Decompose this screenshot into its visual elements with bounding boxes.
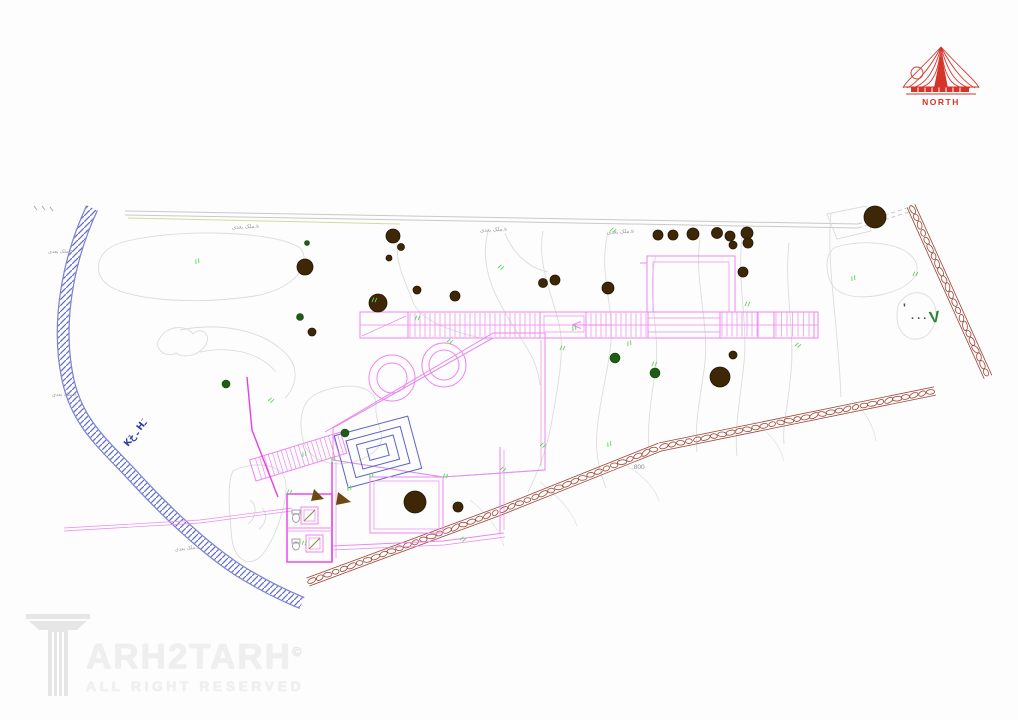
wall-stone — [901, 394, 910, 400]
shrub — [222, 380, 230, 388]
road-lines — [34, 206, 912, 239]
survey-mark — [194, 258, 200, 264]
survey-mark — [415, 316, 420, 321]
tree — [738, 267, 748, 277]
wall-stone — [884, 396, 894, 404]
toilet-fixture — [292, 510, 300, 523]
wall-stone — [954, 306, 961, 314]
annotation-label: ملک بعدی.s — [52, 392, 77, 398]
survey-mark — [745, 302, 750, 307]
wall-stone — [860, 403, 868, 409]
stone-wall-right — [907, 204, 992, 378]
tree — [729, 241, 737, 249]
planter-circles — [369, 343, 466, 401]
wall-stone — [685, 439, 692, 444]
wall-stone — [976, 353, 981, 362]
north-arrow: NORTH — [903, 47, 979, 107]
wall-stone — [339, 565, 348, 572]
wall-stone — [531, 493, 540, 501]
wall-stone — [725, 429, 735, 436]
wall-stone — [793, 416, 801, 422]
wall-stone — [777, 420, 785, 426]
wall-stone — [962, 321, 968, 331]
survey-mark — [460, 536, 466, 542]
north-arrow-core — [934, 52, 948, 88]
shrub — [650, 368, 660, 378]
wall-stone — [475, 515, 484, 522]
annotation-labels-layer: ملک بعدی.sملک بعدی.sملک بعدی.sملک بعدی.s… — [48, 223, 941, 553]
wall-stone — [626, 456, 634, 463]
survey-mark — [443, 474, 448, 479]
shrub — [341, 429, 349, 437]
tree — [668, 230, 678, 240]
survey-mark — [795, 342, 801, 348]
survey-mark — [268, 397, 274, 403]
watermark-brand: ARH2TARH© — [86, 634, 304, 676]
tree — [712, 228, 723, 239]
annotation-label: V — [928, 309, 941, 327]
pool-terrace — [325, 333, 545, 477]
sink-fixture — [292, 539, 300, 550]
wall-stone — [491, 509, 499, 517]
tree — [743, 238, 753, 248]
wall-stone — [610, 463, 618, 468]
wall-stone — [323, 572, 332, 578]
wall-stone — [693, 436, 702, 443]
wall-stone — [851, 403, 859, 410]
wall-stone — [918, 390, 927, 398]
service-building — [287, 489, 351, 562]
annotation-label: Kَـ خ Hَـ — [122, 417, 150, 449]
tree — [550, 275, 560, 285]
tree — [398, 244, 405, 251]
door-swing-1 — [311, 489, 324, 501]
north-label: NORTH — [922, 97, 960, 107]
tree — [687, 228, 699, 240]
wall-stone — [923, 236, 931, 245]
tree — [386, 255, 392, 261]
tree — [308, 328, 316, 336]
wall-stone — [668, 441, 677, 448]
annotation-label: ملک بعدی.s — [480, 226, 507, 234]
pool-hatch-area — [333, 338, 545, 477]
wall-stone — [547, 488, 554, 493]
wall-stone — [931, 252, 937, 259]
wall-stone — [842, 405, 851, 413]
tree — [369, 294, 387, 312]
wall-stone — [768, 421, 776, 427]
door-swing-2 — [336, 492, 351, 505]
annotation-label: ملک بعدی.s — [48, 249, 73, 255]
river-channel — [63, 208, 302, 603]
tree — [729, 351, 737, 359]
tree — [602, 282, 614, 294]
tree — [864, 206, 886, 228]
survey-mark — [498, 264, 504, 270]
wall-stone — [926, 389, 934, 394]
wall-stone — [752, 425, 760, 430]
wall-stone — [586, 472, 594, 478]
tree — [404, 491, 426, 513]
wall-stone — [395, 545, 403, 550]
trees-layer — [297, 206, 886, 513]
wall-stone — [356, 560, 363, 565]
wall-stone — [801, 414, 811, 421]
wall-stone — [920, 229, 926, 237]
tree — [741, 227, 753, 239]
wall-stone — [426, 534, 436, 539]
tree — [453, 502, 463, 512]
wall-stone — [602, 465, 610, 472]
wall-stone — [700, 434, 711, 442]
wall-stone — [965, 330, 972, 338]
wall-stone — [948, 291, 954, 299]
wall-stone — [809, 411, 820, 420]
wall-stone — [507, 502, 516, 510]
wall-stone — [466, 518, 476, 525]
annotation-label: ملک بعدی.s — [607, 228, 634, 236]
tree — [450, 291, 460, 301]
north-arrow-ring — [911, 67, 923, 79]
shrub — [297, 314, 304, 321]
watermark-tagline: ALL RIGHT RESERVED — [86, 678, 304, 694]
wall-stone — [420, 537, 428, 542]
copyright-mark: © — [292, 644, 304, 659]
wall-stone — [315, 574, 324, 582]
shrub — [610, 353, 620, 363]
wall-stone — [835, 408, 843, 414]
shrubs-layer — [222, 241, 660, 438]
wall-stone — [734, 427, 743, 434]
shrub — [305, 241, 310, 246]
tree — [653, 230, 663, 240]
site-plan-page: ملک بعدی.sملک بعدی.sملک بعدی.sملک بعدی.s… — [0, 0, 1018, 720]
wall-stone — [442, 527, 452, 535]
wall-stone — [676, 440, 684, 445]
tree — [413, 286, 421, 294]
watermark-text: ARH2TARH© ALL RIGHT RESERVED — [86, 634, 304, 694]
wall-stone — [876, 399, 884, 406]
river-edge — [63, 208, 302, 603]
wall-stone — [524, 497, 532, 503]
wall-stone — [945, 282, 951, 291]
wall-stone — [909, 391, 919, 399]
window-hatch-2 — [306, 535, 323, 552]
stone-wall-bottom — [307, 387, 936, 586]
tree — [539, 279, 548, 288]
wall-stone — [659, 443, 669, 450]
watermark: ARH2TARH© ALL RIGHT RESERVED — [24, 612, 304, 702]
wall-stone — [892, 396, 902, 402]
wall-stone — [917, 221, 923, 230]
wall-stone — [959, 314, 964, 322]
wall-stone — [578, 475, 587, 480]
survey-mark — [626, 340, 632, 346]
window-hatch-1 — [301, 507, 318, 524]
wall-stone — [332, 569, 340, 575]
annotation-label: . . . — [911, 310, 926, 322]
annotation-label: ملک بعدی.s — [232, 223, 259, 231]
annotation-label: :800 — [632, 464, 645, 471]
wall-stone — [743, 427, 752, 432]
wall-stone — [982, 368, 989, 377]
tree — [710, 367, 730, 387]
wall-stone — [718, 432, 727, 437]
walkway-stairs — [360, 312, 818, 339]
survey-mark — [560, 346, 565, 351]
wall-stone — [649, 447, 657, 452]
wall-stone — [867, 401, 877, 407]
column-logo-icon — [24, 612, 94, 702]
survey-mark — [500, 466, 506, 472]
wall-stone — [459, 522, 467, 527]
wall-stone — [818, 411, 827, 416]
annotation-label: ملک بعدی.s — [175, 544, 200, 553]
river-hatch — [63, 208, 302, 603]
wall-stone — [515, 500, 524, 506]
wall-stone — [826, 409, 836, 415]
tree — [297, 259, 313, 275]
tree — [386, 229, 400, 243]
wall-stone — [617, 459, 627, 465]
wall-stone — [759, 423, 768, 429]
wall-stone — [710, 434, 717, 439]
wall-stone — [387, 549, 396, 554]
survey-mark — [606, 441, 612, 447]
tree — [725, 231, 735, 241]
annotation-label: ' — [903, 301, 906, 315]
survey-mark — [850, 275, 856, 281]
